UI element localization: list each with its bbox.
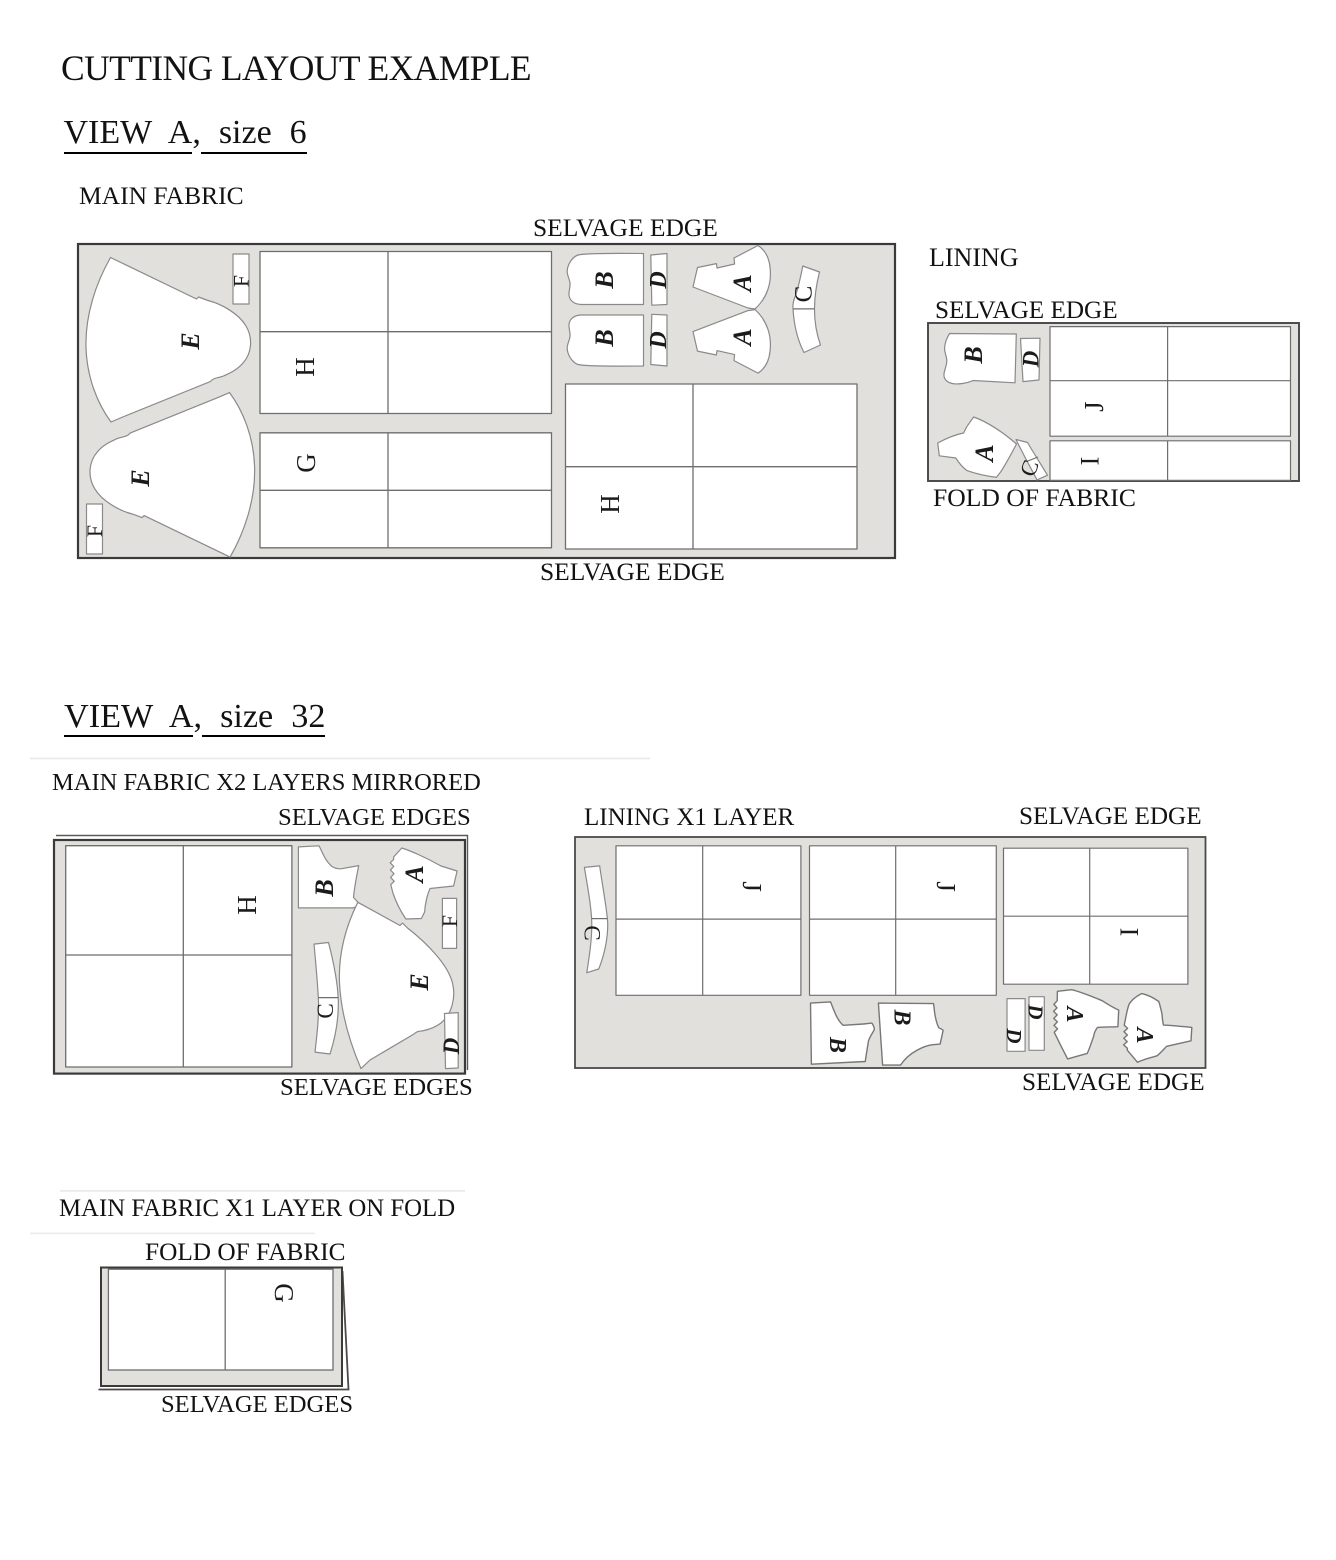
svg-text:D: D [1002,1027,1026,1043]
svg-text:F: F [82,525,107,537]
svg-text:B: B [590,271,619,289]
svg-text:D: D [1019,350,1044,368]
svg-text:E: E [126,469,155,487]
svg-text:B: B [959,346,988,364]
svg-text:B: B [310,879,339,897]
svg-text:F: F [437,915,462,927]
svg-text:J: J [737,881,767,892]
svg-text:H: H [290,357,320,377]
svg-text:D: D [1024,1003,1048,1019]
svg-text:G: G [269,1283,299,1303]
svg-text:B: B [888,1008,914,1025]
svg-text:I: I [1115,928,1144,937]
svg-text:E: E [176,332,205,350]
svg-text:A: A [1061,1004,1087,1022]
svg-text:D: D [439,1037,464,1055]
svg-text:G: G [291,453,321,473]
svg-text:B: B [824,1036,850,1053]
svg-text:A: A [400,865,429,884]
svg-text:J: J [931,881,961,892]
svg-text:A: A [728,274,757,293]
svg-text:C: C [791,286,818,303]
svg-text:H: H [595,494,625,514]
svg-text:A: A [970,444,999,463]
svg-text:A: A [1131,1025,1157,1043]
svg-text:H: H [232,895,262,915]
svg-text:A: A [728,328,757,347]
svg-text:D: D [646,271,672,289]
svg-text:C: C [313,1003,338,1018]
svg-text:B: B [590,329,619,347]
svg-text:C: C [580,925,605,940]
svg-text:F: F [229,275,254,287]
svg-text:I: I [1076,457,1105,466]
svg-text:D: D [646,331,672,349]
svg-text:E: E [405,973,434,991]
svg-text:J: J [1079,401,1109,412]
